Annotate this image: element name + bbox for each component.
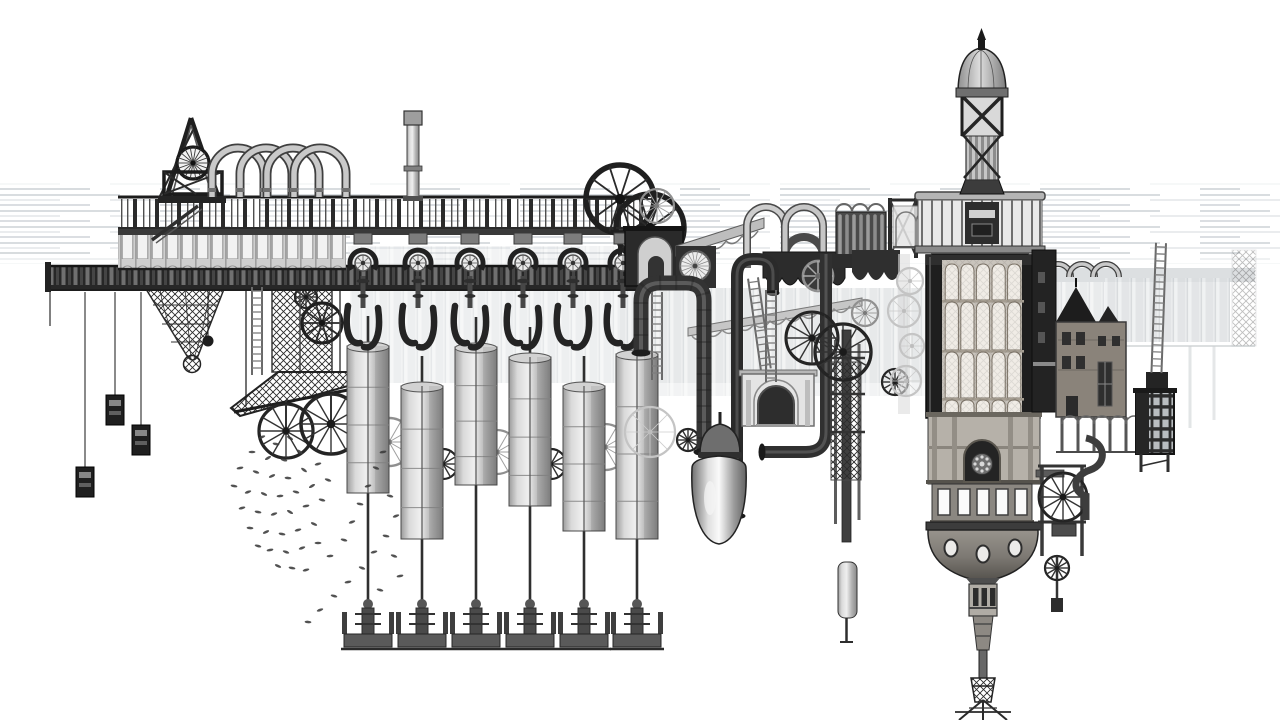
cargo-pulley xyxy=(203,336,214,347)
wheel-light xyxy=(640,189,674,223)
arch-house xyxy=(739,370,817,427)
wheel-ghost xyxy=(900,334,924,358)
ghost-trestle xyxy=(1232,250,1256,346)
wheel-darkthin xyxy=(677,429,699,451)
gallery-rotunda xyxy=(915,192,1045,262)
wheel-light xyxy=(852,300,878,326)
wheel-ghost xyxy=(625,407,675,457)
wheel-darkthin xyxy=(786,312,838,364)
steampunk-factory-illustration xyxy=(0,0,1280,720)
tower-classical-band xyxy=(926,412,1042,484)
wheel-ghost xyxy=(897,268,923,294)
governor-weight xyxy=(1051,598,1063,612)
tower-shaft xyxy=(960,96,1004,194)
rotunda-machine xyxy=(965,202,999,244)
tower-body xyxy=(926,255,1040,418)
wheel-darkthin xyxy=(1045,556,1069,580)
fish xyxy=(249,451,256,454)
wheel-ghost xyxy=(891,366,921,396)
arcade-band xyxy=(118,232,346,269)
tower-window-band xyxy=(930,484,1034,524)
walkway-end-cap xyxy=(45,262,51,292)
basket-ball-tip xyxy=(184,356,201,373)
wheel-head xyxy=(177,147,209,179)
wheel-ghost xyxy=(888,295,920,327)
wheel-darkthin xyxy=(815,324,871,380)
illustration-canvas xyxy=(0,0,1280,720)
keel-bucket xyxy=(971,678,995,702)
fish xyxy=(315,542,322,545)
